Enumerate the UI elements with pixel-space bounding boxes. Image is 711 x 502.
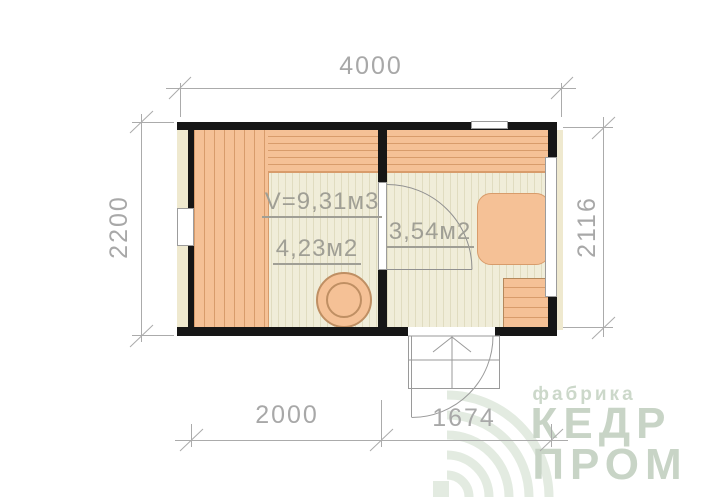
dim-top-line [166, 83, 576, 117]
dim-bottom-line [175, 400, 568, 447]
dimension-bottom-right-label: 1674 [424, 405, 504, 431]
dim-left-line [132, 114, 174, 342]
dimension-top-label: 4000 [331, 53, 411, 79]
dimension-left-label: 2200 [106, 177, 132, 277]
porch-step-lines [409, 336, 500, 389]
dimension-bottom-left-label: 2000 [247, 402, 327, 428]
dimension-right-label: 2116 [574, 177, 600, 277]
steam-room-volume-label: V=9,31м3 [258, 189, 386, 215]
steam-room-area-label: 4,23м2 [255, 236, 379, 262]
porch-outline [409, 336, 500, 389]
entry-room-area-label: 3,54м2 [382, 219, 478, 245]
floor-plan-canvas: фабрика КЕДР ПРОМ [0, 0, 711, 502]
